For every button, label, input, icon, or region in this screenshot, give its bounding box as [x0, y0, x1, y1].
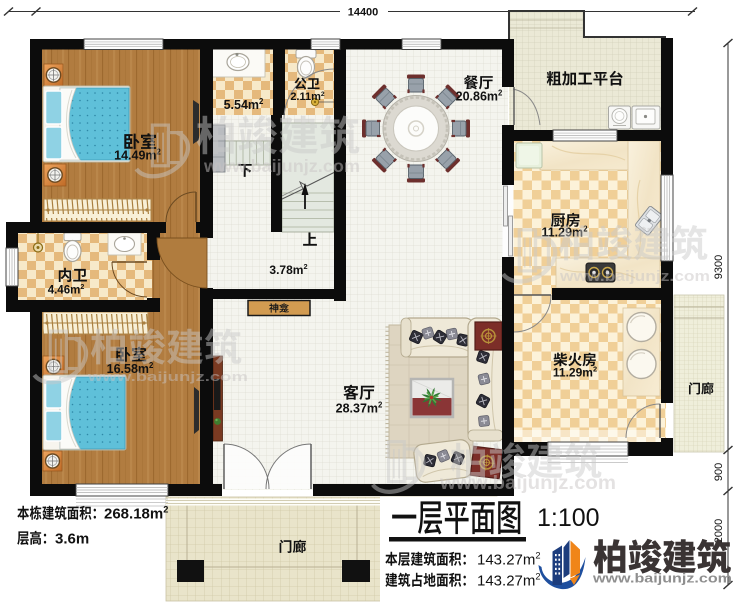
svg-text:14400: 14400 — [348, 7, 379, 19]
svg-text:3.6m: 3.6m — [55, 530, 89, 547]
svg-text:11.29m2: 11.29m2 — [553, 365, 597, 380]
svg-text:28.37m2: 28.37m2 — [336, 401, 383, 416]
svg-text:5.54m2: 5.54m2 — [224, 97, 264, 112]
svg-text:9300: 9300 — [713, 255, 725, 279]
svg-text:900: 900 — [713, 463, 725, 481]
svg-text:www.baijunjz.com: www.baijunjz.com — [592, 572, 732, 586]
svg-text:268.18m2: 268.18m2 — [104, 505, 168, 523]
svg-text:2.11m2: 2.11m2 — [290, 91, 325, 103]
svg-text:4.46m2: 4.46m2 — [48, 283, 85, 296]
svg-text:143.27m2: 143.27m2 — [477, 572, 541, 590]
svg-text:1:100: 1:100 — [537, 504, 600, 532]
svg-text:www.baijunjz.com: www.baijunjz.com — [439, 473, 616, 494]
svg-text:143.27m2: 143.27m2 — [477, 551, 541, 569]
svg-text:20.86m2: 20.86m2 — [456, 89, 503, 104]
svg-text:www.baijunjz.com: www.baijunjz.com — [203, 156, 360, 176]
svg-text:3.78m2: 3.78m2 — [269, 262, 307, 277]
svg-text:www.baijunjz.com: www.baijunjz.com — [559, 268, 710, 285]
svg-text:www.baijunjz.com: www.baijunjz.com — [87, 369, 248, 384]
svg-text:14.49m2: 14.49m2 — [114, 148, 161, 163]
